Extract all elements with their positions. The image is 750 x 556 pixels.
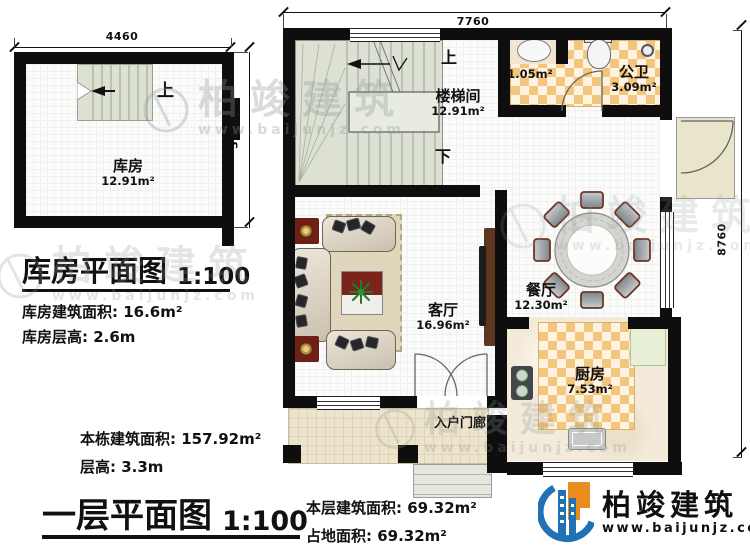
storage-height-note: 库房层高: 2.6m: [22, 326, 135, 347]
extension-line: [234, 227, 248, 228]
pillow: [295, 256, 308, 270]
window: [350, 28, 440, 42]
storage-area-note: 库房建筑面积: 16.6m²: [22, 301, 182, 322]
dimension-line: [283, 12, 666, 13]
wall-segment: [283, 185, 480, 197]
wall-segment: [498, 105, 566, 117]
storage-room-label: 库房 12.91m²: [96, 158, 160, 188]
wall-segment: [283, 28, 672, 40]
kitchen-appliance: [630, 328, 666, 366]
first-floor-title: 一层平面图 1:100: [42, 488, 308, 537]
wall-segment: [222, 228, 234, 246]
extension-line: [283, 14, 284, 28]
storage-stairs-floor: [77, 64, 153, 121]
exterior-landing: [676, 117, 735, 199]
dining-label: 餐厅 12.30m²: [510, 282, 572, 312]
toilet-label: 公卫 3.09m²: [606, 64, 662, 94]
wall-segment: [14, 52, 234, 64]
storage-title-rule: [22, 289, 230, 292]
dim-8760: 8760: [716, 218, 729, 262]
storage-up-label: 上: [157, 76, 174, 101]
sofa-bottom: [326, 330, 396, 370]
wall-segment: [556, 40, 568, 64]
dimension-line: [741, 30, 742, 458]
coffee-table: [341, 271, 383, 315]
tv: [479, 246, 486, 326]
wall-segment: [507, 317, 529, 329]
window: [543, 462, 633, 477]
dimension-tick: [736, 20, 747, 31]
wall-segment: [668, 317, 681, 475]
window: [317, 396, 380, 410]
living-label: 客厅 16.96m²: [412, 302, 474, 332]
dim-7760: 7760: [428, 15, 518, 28]
pillow: [295, 314, 308, 328]
kitchen-sink: [568, 428, 606, 450]
washbasin: [517, 39, 551, 62]
extension-line: [14, 38, 15, 47]
footprint-note: 占地面积: 69.32m²: [306, 525, 447, 546]
extension-line: [733, 457, 742, 458]
wall-segment: [14, 216, 234, 228]
wall-segment: [602, 105, 672, 117]
extension-line: [733, 30, 742, 31]
stairwell-label: 楼梯间 12.91m²: [418, 88, 498, 118]
porch-pillar: [283, 445, 301, 463]
wall-segment: [283, 28, 295, 408]
company-logo: 柏竣建筑 www.baijunjz.com: [538, 476, 750, 550]
wall-segment: [495, 190, 507, 408]
dimension-line: [249, 52, 250, 228]
entry-steps: [413, 464, 492, 498]
floor-plan-sheet: 4460 3300 7760 8760 上 库房 12.91m² 上 楼梯间 1…: [0, 0, 750, 556]
storage-plan-title: 库房平面图 1:100: [22, 248, 250, 290]
company-logo-icon: [538, 476, 594, 550]
shower-head: [641, 44, 654, 57]
extension-line: [231, 38, 232, 47]
level-area-note: 本层建筑面积: 69.32m²: [306, 497, 477, 518]
stove: [511, 366, 533, 400]
side-table: [293, 218, 319, 244]
pillow: [365, 336, 379, 349]
stair-down-label: 下: [435, 143, 451, 167]
wall-segment: [14, 52, 26, 228]
dim-3300: 3300: [228, 111, 241, 155]
first-floor-title-rule: [42, 535, 300, 539]
dim-4460: 4460: [60, 30, 184, 43]
extension-line: [666, 14, 667, 28]
porch-pillar: [398, 445, 418, 463]
kitchen-label: 厨房 7.53m²: [559, 366, 621, 396]
floor-height-note: 层高: 3.3m: [80, 456, 163, 477]
washroom-area-label: 1.05m²: [504, 68, 556, 81]
porch-label: 入户门廊: [424, 417, 496, 432]
window: [660, 212, 674, 308]
side-table: [293, 336, 319, 362]
extension-line: [234, 52, 248, 53]
building-area-note: 本栋建筑面积: 157.92m²: [80, 428, 261, 449]
dimension-tick: [244, 42, 255, 53]
dimension-line: [14, 47, 231, 48]
wall-segment: [628, 317, 668, 329]
stair-up-label: 上: [441, 44, 457, 68]
